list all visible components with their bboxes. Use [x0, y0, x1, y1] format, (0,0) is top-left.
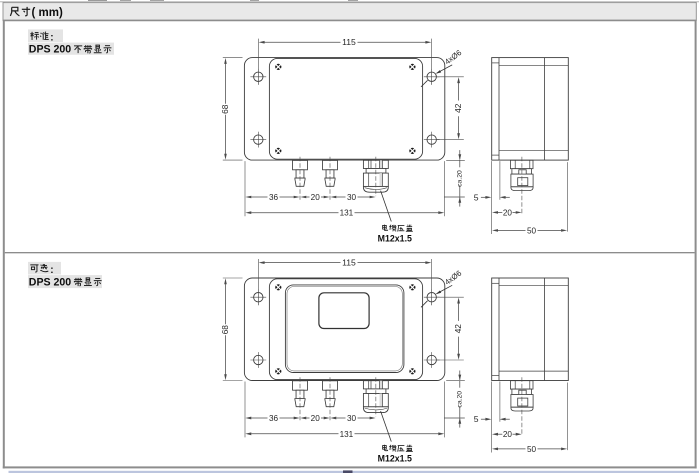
svg-text:ca.20: ca.20 — [456, 170, 463, 187]
svg-text:M12x1.5: M12x1.5 — [378, 454, 412, 464]
svg-text:115: 115 — [342, 258, 356, 268]
svg-text:M12x1.5: M12x1.5 — [378, 234, 412, 244]
svg-text:131: 131 — [340, 209, 354, 218]
svg-text:20: 20 — [503, 430, 513, 439]
svg-text:50: 50 — [527, 226, 537, 235]
svg-text:30: 30 — [347, 193, 357, 202]
svg-text:20: 20 — [311, 414, 321, 423]
svg-text:131: 131 — [340, 430, 354, 439]
svg-text:68: 68 — [220, 325, 230, 335]
svg-text:DPS 200: DPS 200 — [29, 276, 72, 288]
svg-text:5: 5 — [474, 414, 479, 424]
svg-text:20: 20 — [311, 193, 321, 202]
svg-text:68: 68 — [220, 104, 230, 114]
svg-text:5: 5 — [474, 192, 479, 202]
svg-text:36: 36 — [269, 414, 279, 423]
svg-text:20: 20 — [503, 208, 513, 217]
svg-text:30: 30 — [347, 414, 357, 423]
svg-text:( mm): ( mm) — [32, 7, 63, 19]
svg-text:DPS 200: DPS 200 — [29, 43, 72, 55]
svg-text::: : — [50, 32, 53, 43]
svg-text::: : — [50, 265, 53, 276]
svg-text:ca.20: ca.20 — [456, 391, 463, 408]
svg-text:42: 42 — [453, 324, 463, 334]
svg-text:42: 42 — [453, 103, 463, 113]
svg-text:36: 36 — [269, 193, 279, 202]
svg-text:115: 115 — [342, 37, 356, 47]
svg-text:50: 50 — [527, 445, 537, 454]
